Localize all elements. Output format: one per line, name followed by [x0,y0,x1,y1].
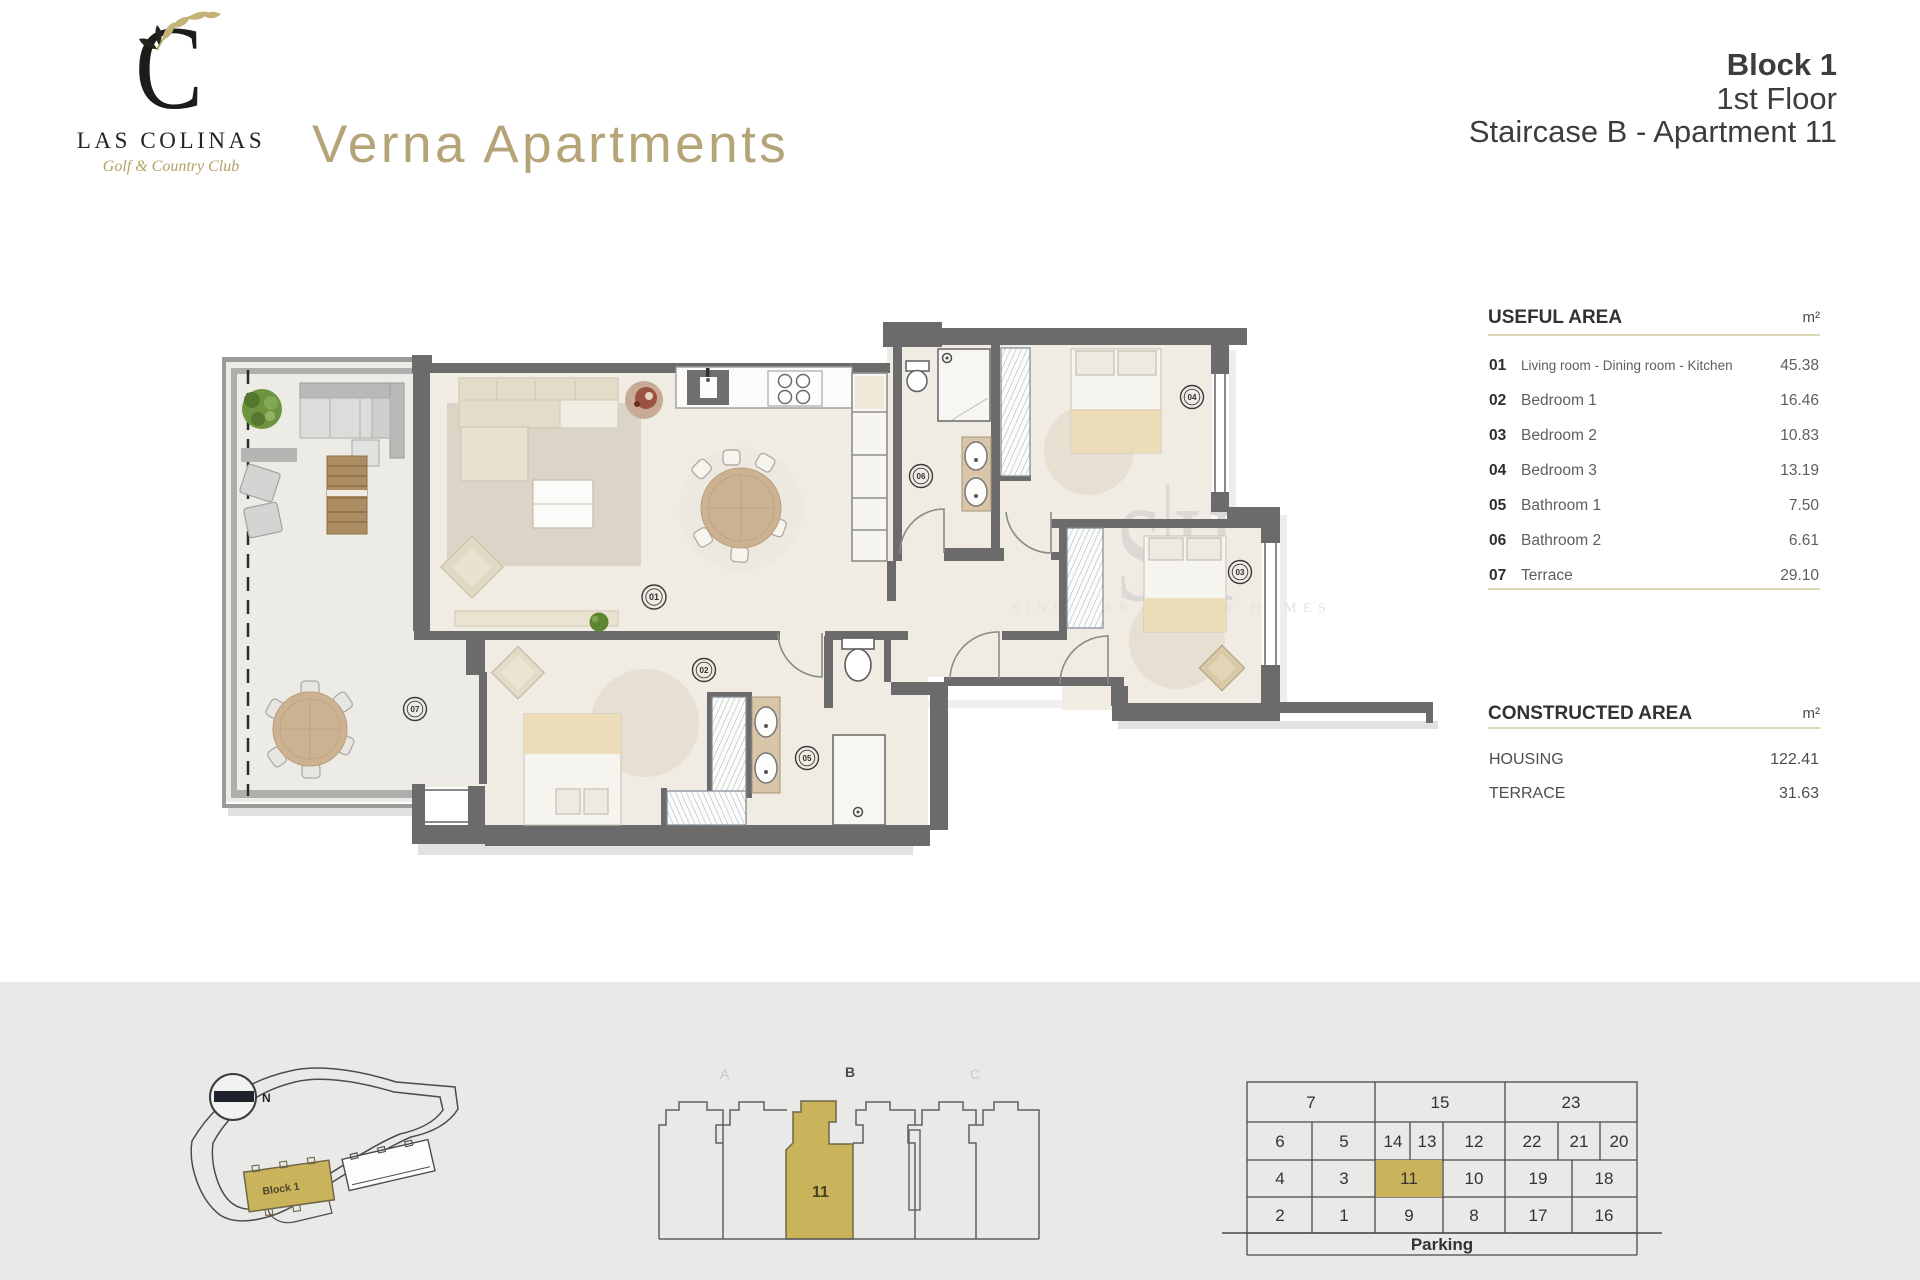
svg-text:B: B [845,1064,855,1080]
svg-text:8: 8 [1469,1206,1478,1225]
svg-text:2: 2 [1275,1206,1284,1225]
svg-text:22: 22 [1523,1132,1542,1151]
svg-text:14: 14 [1384,1132,1403,1151]
svg-text:N: N [262,1091,271,1105]
svg-text:6: 6 [1275,1132,1284,1151]
svg-text:5: 5 [1339,1132,1348,1151]
svg-text:19: 19 [1529,1169,1548,1188]
svg-text:16: 16 [1595,1206,1614,1225]
svg-text:10: 10 [1465,1169,1484,1188]
svg-text:04: 04 [1188,393,1197,402]
svg-text:21: 21 [1570,1132,1589,1151]
svg-text:11: 11 [812,1184,829,1201]
svg-text:06: 06 [917,472,926,481]
svg-text:13: 13 [1418,1132,1437,1151]
svg-text:7: 7 [1306,1093,1315,1112]
svg-text:3: 3 [1339,1169,1348,1188]
svg-text:1: 1 [1339,1206,1348,1225]
svg-text:23: 23 [1562,1093,1581,1112]
svg-text:03: 03 [1236,568,1245,577]
svg-text:9: 9 [1404,1206,1413,1225]
svg-text:05: 05 [803,754,812,763]
svg-text:Parking: Parking [1411,1235,1473,1254]
svg-text:02: 02 [700,666,709,675]
svg-text:12: 12 [1465,1132,1484,1151]
svg-text:20: 20 [1610,1132,1629,1151]
svg-text:15: 15 [1431,1093,1450,1112]
svg-text:18: 18 [1595,1169,1614,1188]
svg-text:01: 01 [649,592,659,602]
svg-text:C: C [970,1066,980,1082]
svg-text:07: 07 [411,705,420,714]
svg-text:A: A [720,1066,730,1082]
svg-text:11: 11 [1400,1169,1418,1188]
svg-text:4: 4 [1275,1169,1284,1188]
svg-text:17: 17 [1529,1206,1548,1225]
